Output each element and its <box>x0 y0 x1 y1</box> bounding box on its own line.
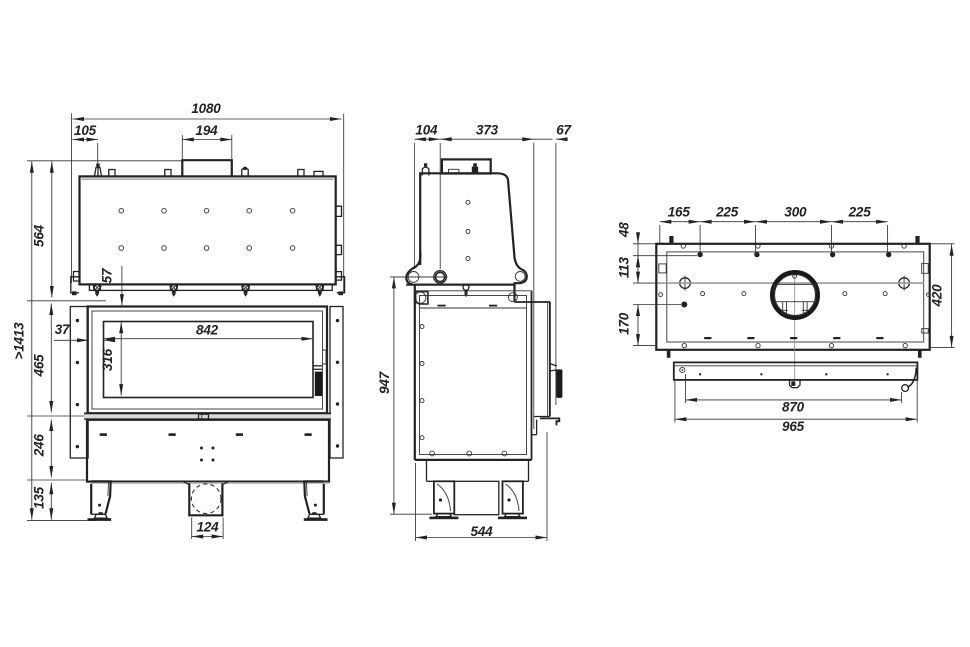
svg-text:57: 57 <box>100 267 115 283</box>
svg-text:870: 870 <box>782 400 805 415</box>
svg-text:48: 48 <box>617 222 632 238</box>
svg-text:246: 246 <box>31 434 46 458</box>
svg-text:225: 225 <box>715 205 739 220</box>
svg-text:105: 105 <box>74 123 97 138</box>
svg-text:225: 225 <box>848 205 872 220</box>
svg-text:>1413: >1413 <box>11 322 26 360</box>
svg-text:165: 165 <box>668 205 691 220</box>
svg-text:465: 465 <box>31 354 46 378</box>
svg-text:1080: 1080 <box>191 101 221 116</box>
svg-text:135: 135 <box>31 486 46 509</box>
svg-text:965: 965 <box>782 419 805 434</box>
svg-text:842: 842 <box>196 323 219 338</box>
svg-text:564: 564 <box>31 224 46 247</box>
svg-text:194: 194 <box>196 123 219 138</box>
svg-text:170: 170 <box>617 312 632 335</box>
svg-text:124: 124 <box>197 520 220 535</box>
svg-text:300: 300 <box>784 205 807 220</box>
svg-text:316: 316 <box>100 348 115 371</box>
svg-text:544: 544 <box>471 524 494 539</box>
svg-text:113: 113 <box>617 256 632 278</box>
svg-text:373: 373 <box>476 123 499 138</box>
svg-text:104: 104 <box>415 123 438 138</box>
svg-text:947: 947 <box>377 370 392 394</box>
svg-text:67: 67 <box>556 123 572 138</box>
svg-text:420: 420 <box>930 284 945 308</box>
svg-text:37: 37 <box>55 322 71 337</box>
